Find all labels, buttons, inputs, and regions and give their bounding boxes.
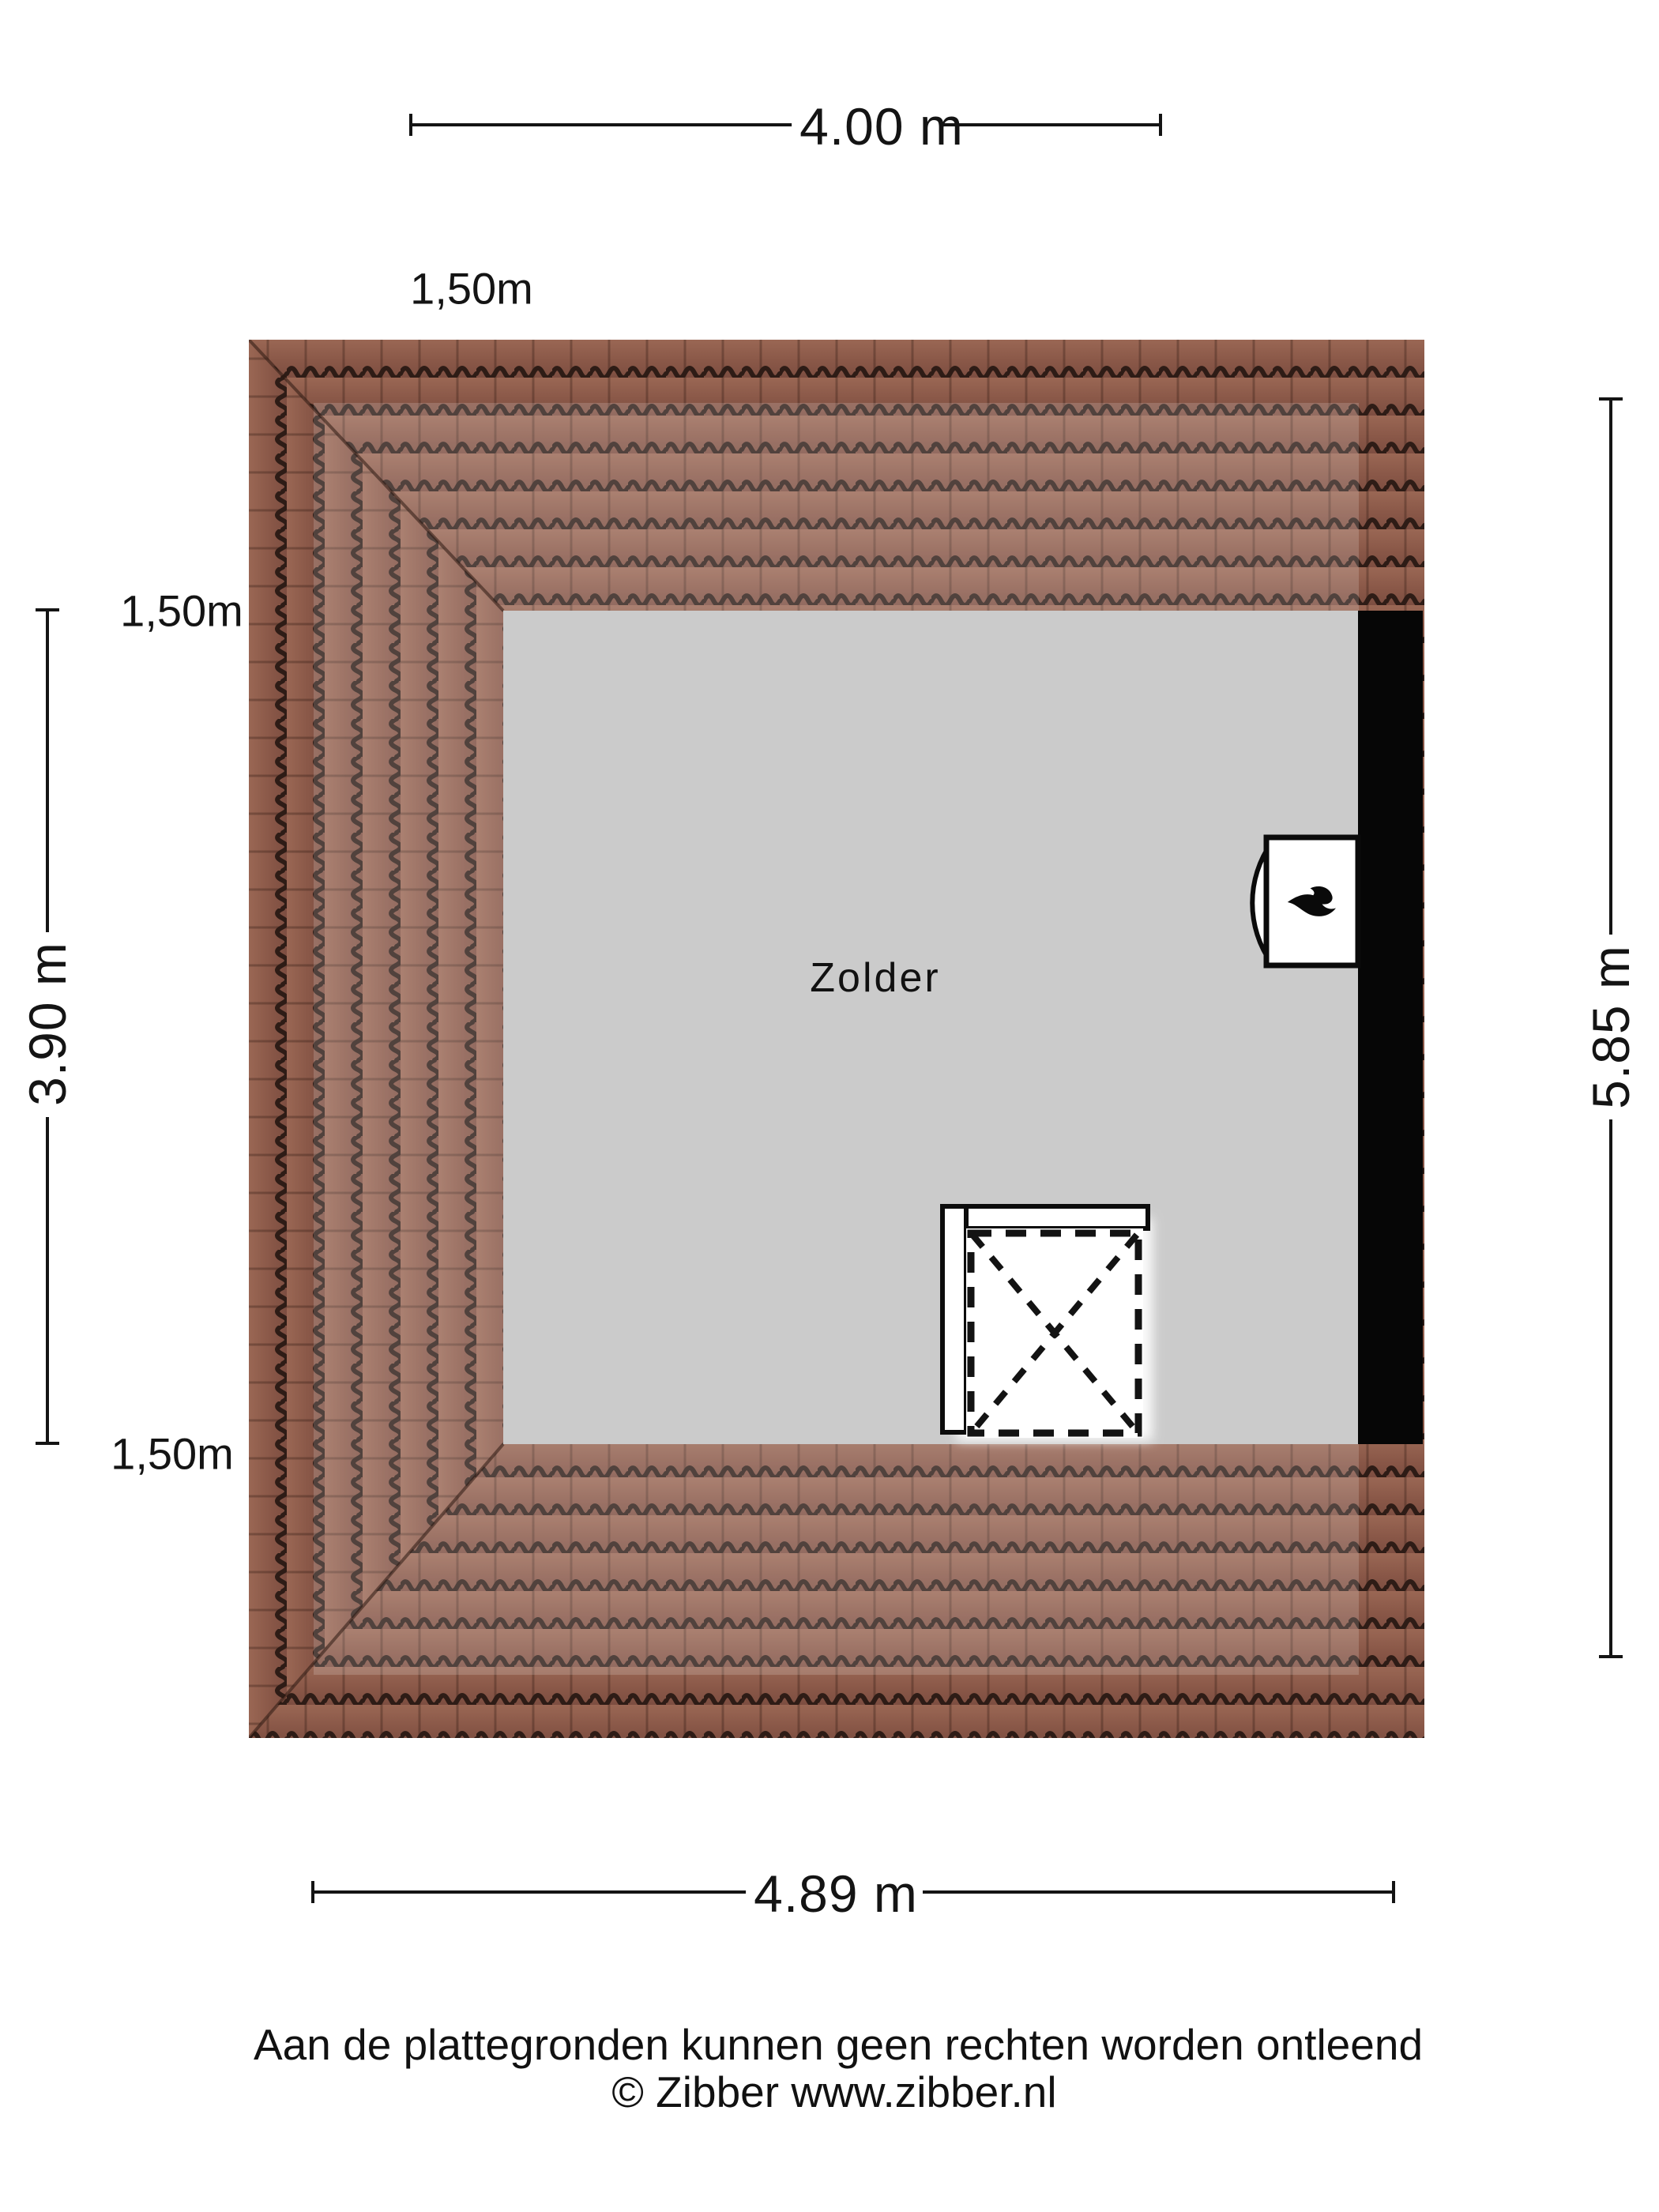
dimension-left-label: 3.90 m	[17, 934, 77, 1114]
overhang-label-left-upper: 1,50m	[120, 585, 243, 637]
footer-disclaimer: Aan de plattegronden kunnen geen rechten…	[254, 2019, 1423, 2070]
dimension-top-label: 4.00 m	[792, 96, 972, 156]
boiler	[1252, 837, 1358, 965]
floorplan-page: Zolder 4.00 m 4.89 m 3.90 m 5.85 m 1,50m…	[0, 0, 1659, 2212]
stair-rail-top	[966, 1206, 1148, 1228]
room-label-zolder: Zolder	[810, 954, 940, 1002]
overhang-label-top: 1,50m	[410, 263, 533, 314]
dimension-top-tick-right	[1159, 114, 1162, 136]
dimension-top-line-left	[409, 123, 826, 126]
dimension-right-line-top	[1609, 397, 1612, 935]
stair-rail-left	[942, 1206, 966, 1432]
dimension-bottom-line-right	[923, 1890, 1395, 1894]
dimension-bottom-line-left	[311, 1890, 749, 1894]
dimension-top-line-right	[940, 123, 1161, 126]
staircase	[942, 1206, 1153, 1441]
dimension-right-tick-bottom	[1599, 1655, 1623, 1658]
dimension-right-line-bottom	[1609, 1119, 1612, 1657]
dimension-right-label: 5.85 m	[1581, 937, 1641, 1117]
dimension-left-line-top	[46, 608, 49, 932]
overhang-label-left-lower: 1,50m	[111, 1428, 234, 1480]
dimension-left-tick-bottom	[36, 1442, 59, 1445]
dimension-bottom-label: 4.89 m	[746, 1864, 926, 1924]
room-zolder-floor	[503, 611, 1358, 1444]
dimension-left-line-bottom	[46, 1117, 49, 1443]
dimension-bottom-tick-right	[1392, 1881, 1395, 1903]
footer-copyright: © Zibber www.zibber.nl	[611, 2067, 1056, 2117]
right-wall	[1358, 611, 1423, 1444]
floorplan-drawing	[249, 340, 1424, 1738]
